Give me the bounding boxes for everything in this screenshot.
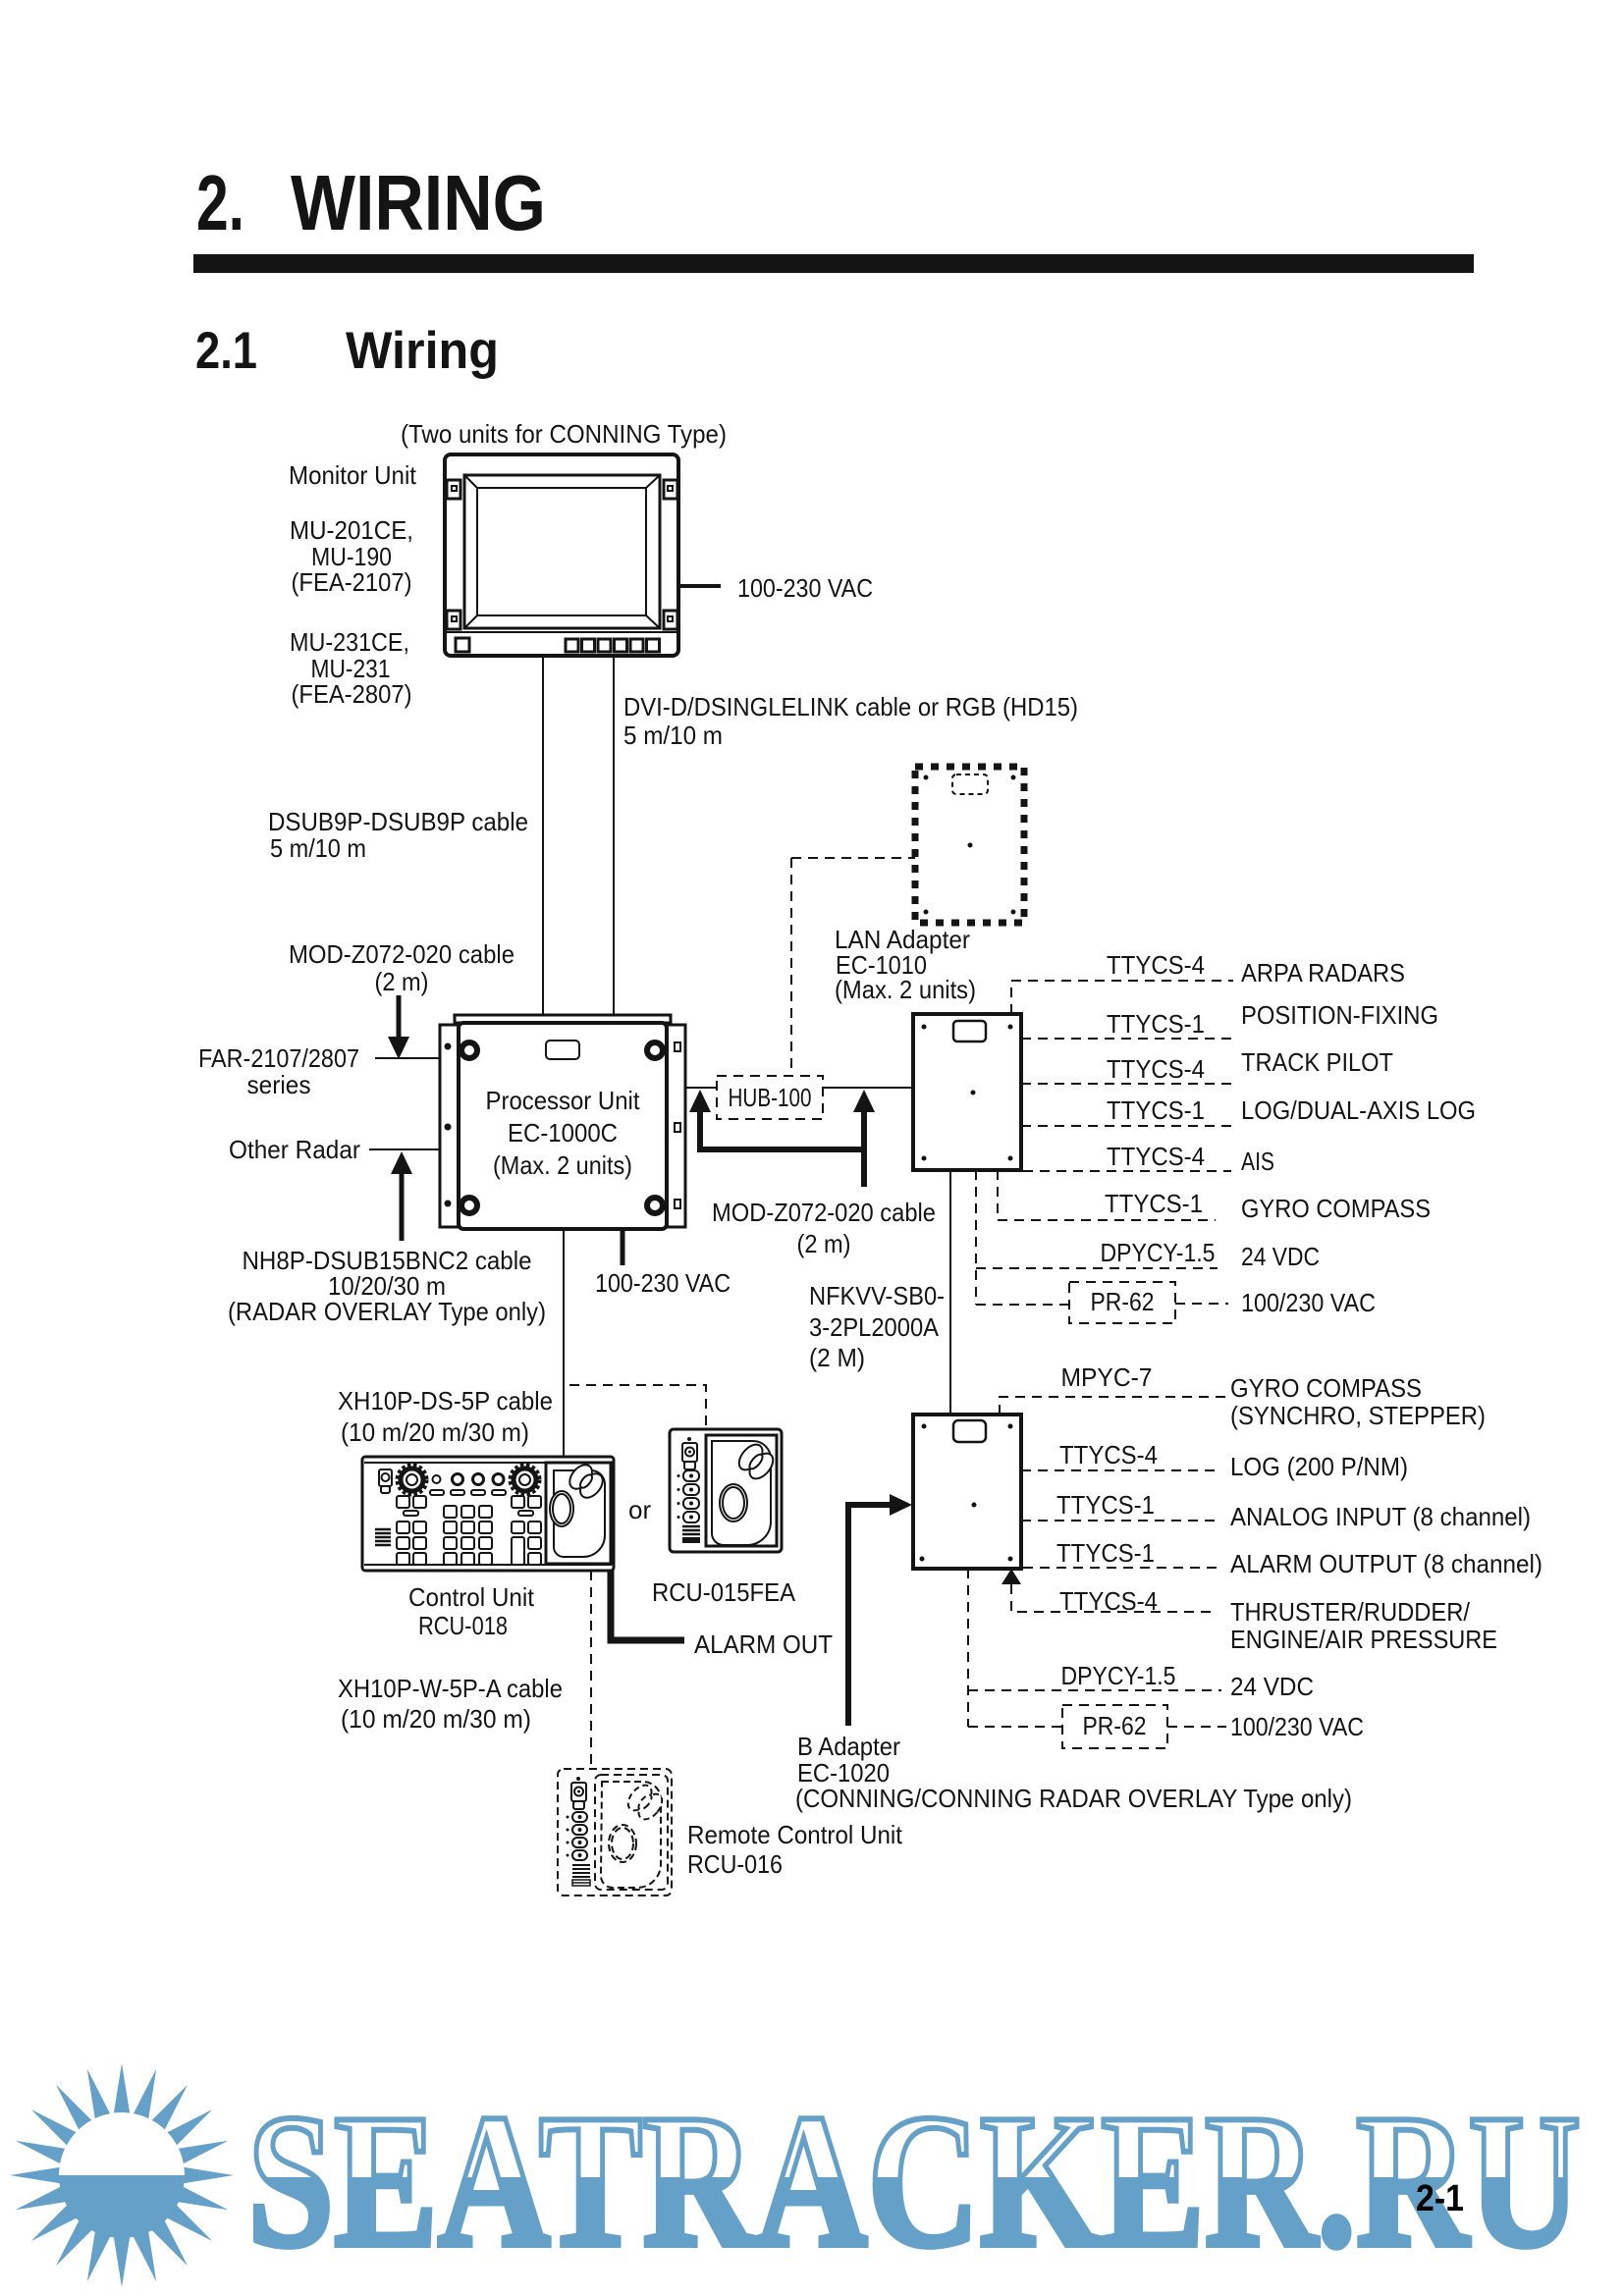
svg-text:TTYCS-1: TTYCS-1: [1056, 1538, 1155, 1568]
svg-text:(Max. 2 units): (Max. 2 units): [493, 1150, 632, 1180]
svg-text:ARPA RADARS: ARPA RADARS: [1241, 958, 1405, 988]
svg-text:100-230 VAC: 100-230 VAC: [595, 1268, 731, 1298]
svg-text:Wiring: Wiring: [346, 322, 499, 380]
svg-text:DPYCY-1.5: DPYCY-1.5: [1061, 1661, 1176, 1690]
svg-text:EC-1000C: EC-1000C: [508, 1118, 618, 1148]
svg-text:series: series: [247, 1070, 311, 1099]
svg-text:RCU-016: RCU-016: [687, 1849, 783, 1879]
svg-text:ANALOG INPUT (8 channel): ANALOG INPUT (8 channel): [1230, 1502, 1531, 1531]
svg-text:B Adapter: B Adapter: [797, 1732, 900, 1761]
svg-text:LOG/DUAL-AXIS LOG: LOG/DUAL-AXIS LOG: [1241, 1095, 1476, 1125]
svg-text:Remote Control Unit: Remote Control Unit: [687, 1820, 903, 1849]
svg-text:DVI-D/DSINGLELINK cable or RGB: DVI-D/DSINGLELINK cable or RGB (HD15): [623, 692, 1078, 721]
svg-text:PR-62: PR-62: [1083, 1711, 1147, 1740]
svg-text:XH10P-W-5P-A cable: XH10P-W-5P-A cable: [338, 1674, 563, 1703]
svg-text:GYRO COMPASS: GYRO COMPASS: [1241, 1194, 1431, 1223]
svg-text:TTYCS-4: TTYCS-4: [1059, 1440, 1158, 1469]
svg-text:5 m/10 m: 5 m/10 m: [623, 721, 723, 750]
svg-text:2-1: 2-1: [1416, 2178, 1464, 2219]
svg-text:(RADAR OVERLAY Type only): (RADAR OVERLAY Type only): [228, 1297, 546, 1326]
svg-text:LOG (200 P/NM): LOG (200 P/NM): [1230, 1452, 1408, 1481]
svg-text:100-230 VAC: 100-230 VAC: [737, 573, 873, 603]
svg-text:DPYCY-1.5: DPYCY-1.5: [1101, 1238, 1216, 1267]
svg-text:(10 m/20 m/30 m): (10 m/20 m/30 m): [341, 1704, 531, 1734]
svg-text:2.1: 2.1: [195, 322, 257, 380]
svg-text:PR-62: PR-62: [1091, 1287, 1155, 1316]
svg-text:MU-231CE,: MU-231CE,: [290, 627, 409, 657]
svg-text:24 VDC: 24 VDC: [1230, 1672, 1314, 1701]
svg-text:MOD-Z072-020 cable: MOD-Z072-020 cable: [289, 939, 514, 969]
svg-text:DSUB9P-DSUB9P cable: DSUB9P-DSUB9P cable: [268, 807, 528, 836]
svg-text:Monitor Unit: Monitor Unit: [289, 460, 417, 490]
svg-text:MOD-Z072-020 cable: MOD-Z072-020 cable: [712, 1198, 936, 1227]
svg-text:(2 m): (2 m): [797, 1229, 851, 1258]
svg-text:3-2PL2000A: 3-2PL2000A: [809, 1312, 940, 1342]
svg-text:(Max. 2 units): (Max. 2 units): [835, 975, 976, 1004]
svg-text:WIRING: WIRING: [291, 159, 546, 246]
svg-text:TRACK PILOT: TRACK PILOT: [1241, 1047, 1393, 1077]
svg-text:Processor Unit: Processor Unit: [486, 1086, 641, 1115]
svg-text:RCU-015FEA: RCU-015FEA: [652, 1577, 796, 1607]
svg-text:POSITION-FIXING: POSITION-FIXING: [1241, 1000, 1438, 1030]
svg-text:TTYCS-1: TTYCS-1: [1056, 1490, 1155, 1520]
svg-text:(2 m): (2 m): [375, 967, 429, 996]
svg-text:(CONNING/CONNING RADAR OVERLAY: (CONNING/CONNING RADAR OVERLAY Type only…: [795, 1784, 1352, 1813]
svg-text:(FEA-2807): (FEA-2807): [292, 679, 412, 709]
svg-text:MPYC-7: MPYC-7: [1061, 1362, 1153, 1392]
svg-text:5 m/10 m: 5 m/10 m: [270, 833, 366, 863]
svg-text:or: or: [628, 1495, 651, 1524]
svg-text:ALARM OUTPUT (8 channel): ALARM OUTPUT (8 channel): [1230, 1549, 1543, 1578]
svg-text:ENGINE/AIR PRESSURE: ENGINE/AIR PRESSURE: [1230, 1625, 1497, 1654]
svg-text:TTYCS-1: TTYCS-1: [1105, 1189, 1203, 1218]
svg-text:100/230 VAC: 100/230 VAC: [1241, 1288, 1376, 1317]
svg-text:GYRO COMPASS: GYRO COMPASS: [1230, 1373, 1422, 1403]
svg-text:RCU-018: RCU-018: [418, 1611, 508, 1640]
svg-text:NFKVV-SB0-: NFKVV-SB0-: [809, 1281, 945, 1310]
svg-text:HUB-100: HUB-100: [729, 1083, 812, 1112]
svg-text:TTYCS-4: TTYCS-4: [1107, 1054, 1205, 1084]
svg-text:(FEA-2107): (FEA-2107): [292, 567, 412, 597]
svg-text:Other Radar: Other Radar: [229, 1135, 360, 1164]
svg-text:Control Unit: Control Unit: [408, 1582, 535, 1612]
svg-text:TTYCS-1: TTYCS-1: [1107, 1009, 1205, 1039]
svg-text:AIS: AIS: [1241, 1147, 1274, 1176]
svg-text:(SYNCHRO, STEPPER): (SYNCHRO, STEPPER): [1230, 1401, 1486, 1430]
svg-text:TTYCS-4: TTYCS-4: [1059, 1586, 1158, 1616]
svg-text:2.: 2.: [196, 159, 244, 246]
svg-text:SEATRACKER.RU: SEATRACKER.RU: [247, 2075, 1581, 2287]
svg-text:(10 m/20 m/30 m): (10 m/20 m/30 m): [341, 1417, 529, 1447]
svg-text:TTYCS-4: TTYCS-4: [1107, 1142, 1205, 1171]
svg-text:100/230 VAC: 100/230 VAC: [1230, 1712, 1364, 1741]
svg-text:ALARM OUT: ALARM OUT: [694, 1629, 833, 1659]
svg-text:(Two units for CONNING Type): (Two units for CONNING Type): [401, 419, 727, 449]
svg-text:24 VDC: 24 VDC: [1241, 1242, 1320, 1271]
svg-text:FAR-2107/2807: FAR-2107/2807: [198, 1043, 359, 1073]
svg-text:TTYCS-4: TTYCS-4: [1107, 950, 1205, 980]
svg-text:MU-201CE,: MU-201CE,: [290, 515, 413, 545]
svg-text:XH10P-DS-5P cable: XH10P-DS-5P cable: [338, 1386, 553, 1415]
svg-text:THRUSTER/RUDDER/: THRUSTER/RUDDER/: [1230, 1597, 1471, 1627]
svg-text:TTYCS-1: TTYCS-1: [1107, 1095, 1205, 1125]
svg-text:(2 M): (2 M): [809, 1343, 865, 1372]
